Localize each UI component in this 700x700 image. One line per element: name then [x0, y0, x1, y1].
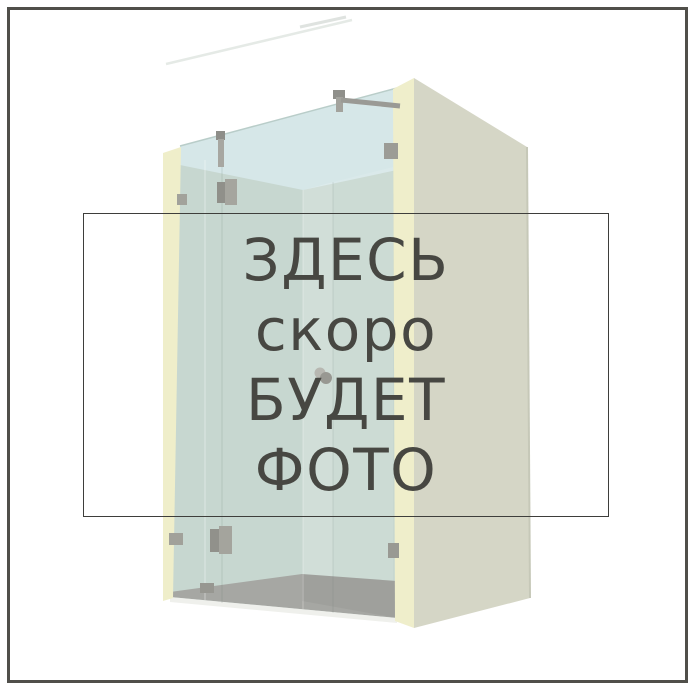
photo-placeholder-box: ЗДЕСЬ скоро БУДЕТ ФОТО [83, 213, 609, 517]
placeholder-text-line-1: ЗДЕСЬ [243, 225, 450, 295]
placeholder-text-line-3: БУДЕТ [246, 365, 446, 435]
hinge-lower-strip [169, 533, 183, 545]
placeholder-text-line-2: скоро [255, 295, 437, 365]
ghost-top-edge [166, 20, 352, 64]
floor-fitting [200, 583, 214, 593]
top-left-post-cap [216, 131, 225, 140]
hinge-upper-right [384, 143, 398, 159]
placeholder-text-line-4: ФОТО [255, 435, 438, 505]
hinge-lower-right [388, 543, 399, 558]
wall-bracket-left [177, 194, 187, 205]
hinge-lower-left-b [219, 526, 232, 554]
product-photo-placeholder: ЗДЕСЬ скоро БУДЕТ ФОТО [0, 0, 700, 700]
hinge-upper-left-a [217, 182, 225, 203]
hinge-lower-left-a [210, 529, 219, 552]
top-left-post [218, 139, 224, 167]
hinge-upper-left-b [225, 179, 237, 205]
